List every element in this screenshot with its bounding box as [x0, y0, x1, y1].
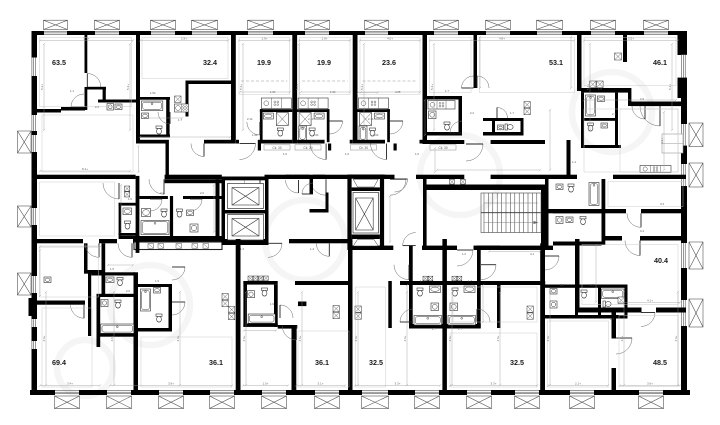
- svg-text:1.2: 1.2: [462, 252, 466, 256]
- svg-text:4.8+: 4.8+: [499, 37, 505, 41]
- svg-text:2.9+: 2.9+: [181, 37, 187, 41]
- svg-text:1.7: 1.7: [178, 118, 182, 122]
- svg-text:1.94: 1.94: [330, 90, 336, 94]
- svg-text:3.1+: 3.1+: [660, 138, 664, 144]
- svg-text:3.9+: 3.9+: [168, 382, 174, 386]
- svg-text:5.4+: 5.4+: [295, 84, 299, 90]
- svg-text:1.94: 1.94: [270, 90, 276, 94]
- svg-text:4.1: 4.1: [530, 252, 534, 256]
- svg-text:1.3: 1.3: [590, 283, 594, 287]
- svg-text:1.9+: 1.9+: [322, 37, 328, 41]
- svg-text:4.6+: 4.6+: [674, 335, 678, 341]
- svg-text:5.7+: 5.7+: [84, 37, 90, 41]
- svg-text:1.7: 1.7: [510, 111, 514, 115]
- svg-text:1.7: 1.7: [610, 317, 614, 321]
- svg-text:1.4: 1.4: [310, 247, 314, 251]
- svg-text:5.4+: 5.4+: [586, 84, 590, 90]
- svg-text:5.4+: 5.4+: [430, 84, 434, 90]
- svg-text:4.0+: 4.0+: [387, 37, 393, 41]
- svg-text:1.5: 1.5: [110, 267, 114, 271]
- svg-text:1.8: 1.8: [598, 87, 602, 91]
- svg-text:1.7: 1.7: [468, 279, 472, 283]
- svg-text:32.4: 32.4: [203, 58, 217, 67]
- svg-text:2.0: 2.0: [560, 283, 564, 287]
- svg-text:19.9: 19.9: [317, 58, 331, 67]
- svg-text:69.4: 69.4: [52, 358, 66, 367]
- svg-text:1.54: 1.54: [150, 91, 156, 95]
- svg-text:1.6: 1.6: [128, 197, 132, 201]
- svg-text:3.1+: 3.1+: [318, 382, 324, 386]
- svg-text:40.4: 40.4: [654, 256, 668, 265]
- svg-text:2.9: 2.9: [640, 97, 644, 101]
- svg-text:63.5: 63.5: [52, 58, 66, 67]
- svg-text:2.1: 2.1: [612, 112, 616, 116]
- svg-text:2.0: 2.0: [126, 289, 130, 293]
- svg-text:1.1: 1.1: [70, 89, 74, 93]
- svg-text:1.7: 1.7: [420, 279, 424, 283]
- svg-text:4.6+: 4.6+: [403, 335, 407, 341]
- svg-text:2.14: 2.14: [368, 117, 374, 121]
- svg-text:3.3+: 3.3+: [395, 382, 401, 386]
- svg-text:53.1: 53.1: [549, 58, 563, 67]
- svg-text:2.1+: 2.1+: [575, 382, 581, 386]
- svg-text:5.4+: 5.4+: [668, 84, 672, 90]
- svg-text:1.9: 1.9: [155, 279, 159, 283]
- svg-text:2.2: 2.2: [160, 191, 164, 195]
- svg-text:4.6+: 4.6+: [298, 335, 302, 341]
- svg-text:8.1+: 8.1+: [82, 167, 88, 171]
- svg-text:2.14: 2.14: [247, 117, 253, 121]
- svg-text:1.7: 1.7: [258, 276, 262, 280]
- svg-text:3.5+: 3.5+: [628, 37, 634, 41]
- svg-text:5.4+: 5.4+: [239, 84, 243, 90]
- svg-text:3.3+: 3.3+: [491, 382, 497, 386]
- svg-text:1.64: 1.64: [252, 133, 258, 137]
- svg-text:Ck. 30: Ck. 30: [272, 146, 281, 150]
- svg-text:3.4+: 3.4+: [67, 382, 73, 386]
- svg-text:1.5+: 1.5+: [263, 382, 269, 386]
- svg-text:32.5: 32.5: [510, 358, 524, 367]
- svg-text:1.64: 1.64: [373, 133, 379, 137]
- svg-text:1.3: 1.3: [240, 247, 244, 251]
- svg-text:3.3: 3.3: [660, 202, 664, 206]
- svg-text:48.5: 48.5: [653, 358, 667, 367]
- svg-text:2.2: 2.2: [95, 105, 99, 109]
- svg-text:4.6+: 4.6+: [448, 335, 452, 341]
- svg-text:36.1: 36.1: [315, 358, 329, 367]
- svg-text:36.1: 36.1: [209, 358, 223, 367]
- svg-text:4.6+: 4.6+: [620, 335, 624, 341]
- svg-text:4.1+: 4.1+: [647, 299, 653, 303]
- svg-text:4.6+: 4.6+: [546, 335, 550, 341]
- svg-text:2.2: 2.2: [470, 111, 474, 115]
- svg-text:1.0: 1.0: [283, 152, 287, 156]
- svg-text:46.1: 46.1: [653, 58, 667, 67]
- svg-text:2.14: 2.14: [308, 117, 314, 121]
- svg-text:Ck. 30: Ck. 30: [438, 146, 447, 150]
- svg-text:5.4+: 5.4+: [40, 84, 44, 90]
- svg-text:1.0: 1.0: [345, 152, 349, 156]
- svg-text:1.6: 1.6: [270, 302, 274, 306]
- svg-text:4.6+: 4.6+: [496, 335, 500, 341]
- svg-text:5.4+: 5.4+: [126, 84, 130, 90]
- svg-text:Ck. 30: Ck. 30: [303, 146, 312, 150]
- svg-text:Ck. 30: Ck. 30: [359, 146, 368, 150]
- svg-text:3.4: 3.4: [640, 229, 644, 233]
- svg-text:1.7: 1.7: [458, 327, 462, 331]
- svg-text:4.6+: 4.6+: [110, 335, 114, 341]
- svg-text:1.0: 1.0: [415, 152, 419, 156]
- svg-text:4.6+: 4.6+: [242, 335, 246, 341]
- svg-text:4.6+: 4.6+: [42, 335, 46, 341]
- svg-text:1.7: 1.7: [445, 89, 449, 93]
- svg-text:19.9: 19.9: [257, 58, 271, 67]
- svg-text:1.7: 1.7: [432, 327, 436, 331]
- svg-text:32.5: 32.5: [369, 358, 383, 367]
- svg-text:5.4+: 5.4+: [360, 84, 364, 90]
- svg-text:4.6+: 4.6+: [354, 335, 358, 341]
- svg-text:23.6: 23.6: [382, 58, 396, 67]
- svg-text:1.9+: 1.9+: [262, 37, 268, 41]
- svg-text:2.6: 2.6: [200, 191, 204, 195]
- svg-text:1.4: 1.4: [572, 160, 576, 164]
- svg-text:1.64: 1.64: [313, 133, 319, 137]
- svg-text:3.6+: 3.6+: [647, 382, 653, 386]
- svg-text:4.6+: 4.6+: [176, 335, 180, 341]
- svg-text:4.05: 4.05: [395, 90, 401, 94]
